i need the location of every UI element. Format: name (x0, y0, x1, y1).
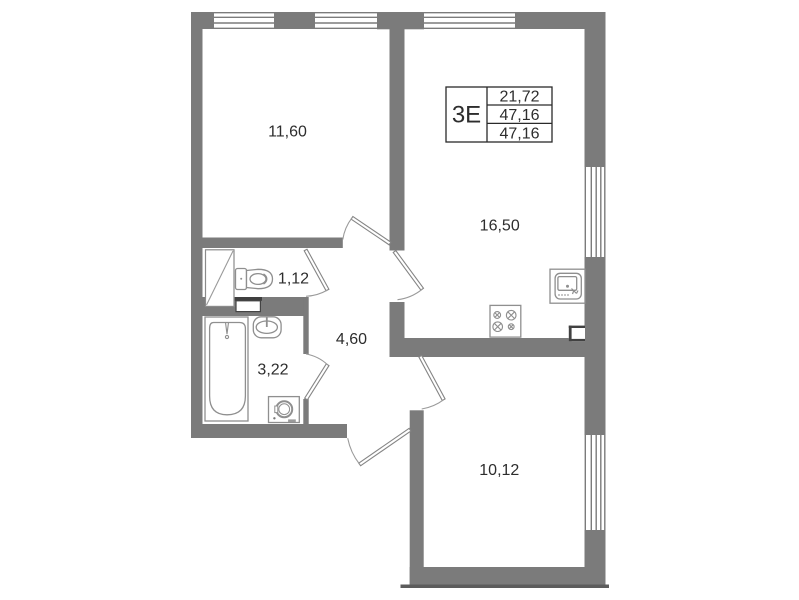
svg-text:3,22: 3,22 (257, 362, 288, 379)
svg-text:21,72: 21,72 (499, 89, 539, 106)
svg-text:11,60: 11,60 (268, 124, 307, 141)
svg-text:4,60: 4,60 (336, 331, 367, 348)
svg-text:10,12: 10,12 (479, 462, 519, 479)
svg-text:3Е: 3Е (452, 102, 481, 129)
svg-text:47,16: 47,16 (499, 107, 539, 124)
svg-text:16,50: 16,50 (480, 218, 520, 235)
svg-text:1,12: 1,12 (278, 271, 309, 288)
svg-text:47,16: 47,16 (499, 125, 539, 142)
